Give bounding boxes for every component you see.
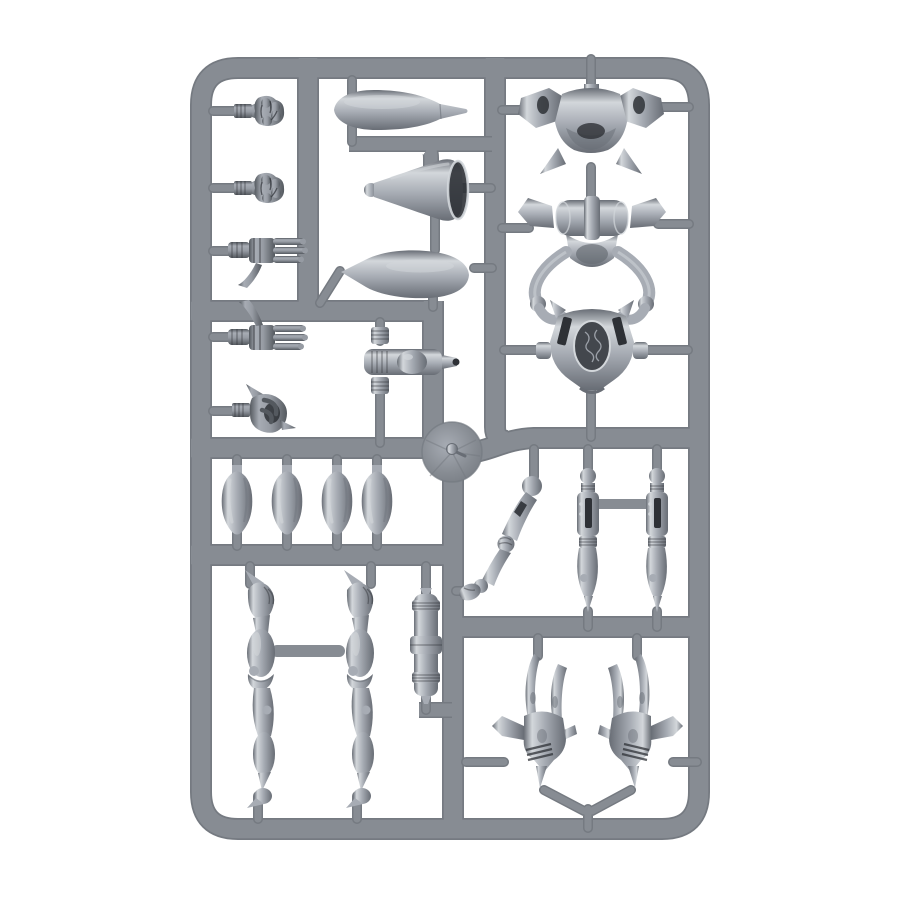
ribbed-cylinder-part bbox=[410, 588, 442, 704]
injection-disc bbox=[422, 422, 482, 482]
sprue-photo-svg: Grey plastic model kit sprue with robot … bbox=[0, 0, 900, 900]
sprue-photo: Grey plastic model kit sprue with robot … bbox=[0, 0, 900, 900]
